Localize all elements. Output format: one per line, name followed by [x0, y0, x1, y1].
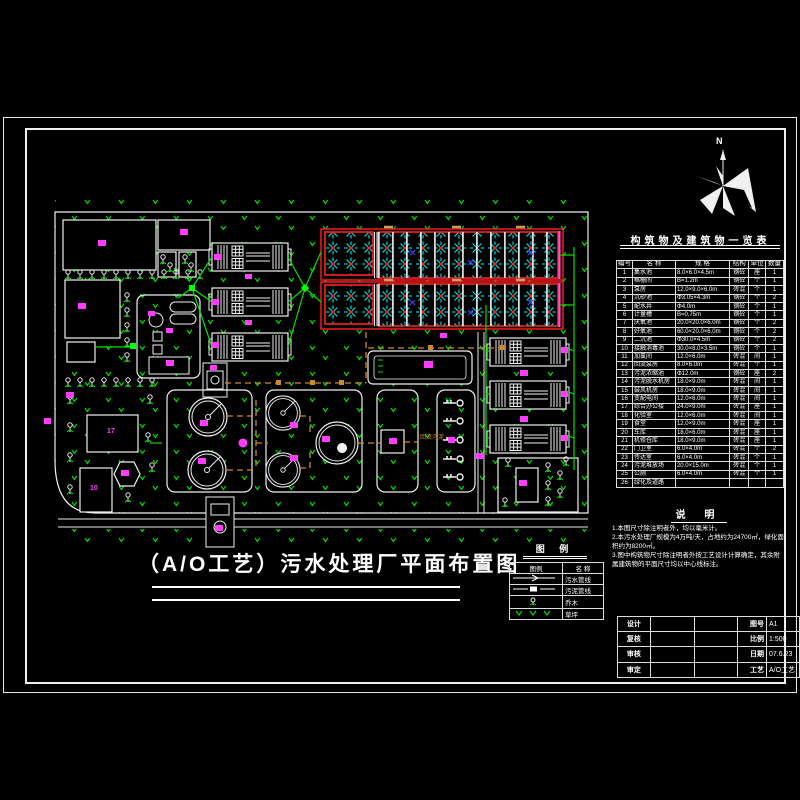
cell-name: 二沉池 — [633, 336, 676, 344]
cell-name: 泵房 — [633, 286, 676, 294]
cell-unit: 个 — [749, 361, 766, 369]
cell-qty: 1 — [766, 395, 784, 403]
table-row: 4沉砂池Φ3.05×4.3m钢砼个2 — [617, 294, 784, 302]
cell-qty: 1 — [766, 403, 784, 411]
legend-name-sewer: 污水管线 — [563, 574, 604, 585]
legend: 图 例 图例 名 称 污水管线 污泥管线 — [509, 542, 604, 620]
legend-name-tree: 乔木 — [563, 596, 604, 609]
cell-no: 6 — [617, 311, 633, 319]
cell-unit: 个 — [749, 470, 766, 478]
cell-no: 11 — [617, 353, 633, 361]
cell-spec: B=1.2m — [675, 277, 729, 285]
tb-blank-3 — [695, 647, 738, 662]
cell-unit: 个 — [749, 311, 766, 319]
review-label: 审核 — [618, 647, 651, 662]
cell-spec: 12.0×6.0m — [675, 412, 729, 420]
cell-struct: 砖混 — [730, 378, 749, 386]
cell-unit: 座 — [749, 269, 766, 277]
cell-unit: 间 — [749, 395, 766, 403]
cell-qty: 2 — [766, 294, 784, 302]
cell-qty: 1 — [766, 286, 784, 294]
legend-symbol-sludge-line-icon — [510, 585, 563, 596]
table-row: 19食堂12.0×9.0m砖混座1 — [617, 420, 784, 428]
table-row: 8好氧池60.0×20.0×6.0m钢砼个2 — [617, 328, 784, 336]
cell-name: 加氯间 — [633, 353, 676, 361]
table-row: 3泵房12.0×9.0×6.0m砖混个1 — [617, 286, 784, 294]
cell-no: 10 — [617, 344, 633, 352]
cell-struct: 钢砼 — [730, 311, 749, 319]
table-row: 25公厕6.0×4.0m砖混个1 — [617, 470, 784, 478]
cell-name: 集水池 — [633, 269, 676, 277]
cell-unit: 座 — [749, 370, 766, 378]
cell-struct: 砖混 — [730, 445, 749, 453]
date-label: 日期 — [738, 647, 767, 662]
table-row: 15鼓风机房18.0×9.0m砖混间1 — [617, 386, 784, 394]
table-row: 21机修仓库18.0×9.0m砖混座1 — [617, 437, 784, 445]
table-row: 10接触消毒池30.0×8.0×3.5m钢砼个1 — [617, 344, 784, 352]
table-row: 5配水井Φ4.0m钢砼个1 — [617, 302, 784, 310]
cell-name: 车库 — [633, 428, 676, 436]
cell-struct: 砖混 — [730, 361, 749, 369]
cell-no: 16 — [617, 395, 633, 403]
cell-qty: 1 — [766, 302, 784, 310]
cell-qty: 1 — [766, 353, 784, 361]
cell-unit: 座 — [749, 420, 766, 428]
cell-qty — [766, 479, 784, 487]
legend-title: 图 例 — [509, 542, 601, 555]
table-row: 7厌氧池20.0×20.0×6.0m钢砼个2 — [617, 319, 784, 327]
cell-spec: 20.0×15.0m — [675, 462, 729, 470]
check-label: 复核 — [618, 632, 651, 647]
cell-struct: 砖混 — [730, 286, 749, 294]
cell-spec: Φ30.0×4.5m — [675, 336, 729, 344]
cell-name: 配水井 — [633, 302, 676, 310]
col-header-struct: 结构 — [730, 261, 749, 269]
cell-spec — [675, 479, 729, 487]
table-row: 2格栅间B=1.2m钢砼个1 — [617, 277, 784, 285]
table-row: 14污泥脱水机房18.0×9.0m砖混间1 — [617, 378, 784, 386]
cell-name: 鼓风机房 — [633, 386, 676, 394]
cell-struct: 砖混 — [730, 420, 749, 428]
col-header-qty: 数量 — [766, 261, 784, 269]
cell-struct: 钢砼 — [730, 328, 749, 336]
cell-qty: 1 — [766, 269, 784, 277]
cell-name: 绿化及道路 — [633, 479, 676, 487]
cell-qty: 2 — [766, 336, 784, 344]
aeration-basin-row2 — [321, 282, 563, 329]
cell-struct: 砖混 — [730, 403, 749, 411]
approve-value — [650, 662, 695, 677]
cell-unit: 个 — [749, 462, 766, 470]
legend-underline-2 — [523, 558, 587, 559]
sludge-pipe-label: 回流污泥 — [420, 432, 444, 441]
cell-spec: 18.0×9.0m — [675, 386, 729, 394]
cell-qty: 1 — [766, 344, 784, 352]
cell-no: 3 — [617, 286, 633, 294]
cell-no: 4 — [617, 294, 633, 302]
notes-items: 1.本图尺寸除注明者外，均以毫米计。2.本污水处理厂规模为4万吨/天，占地约为2… — [612, 525, 786, 570]
cell-struct — [730, 479, 749, 487]
note-item: 1.本图尺寸除注明者外，均以毫米计。 — [612, 525, 786, 534]
legend-header-name: 名 称 — [563, 563, 604, 574]
cell-struct: 砖混 — [730, 412, 749, 420]
cell-name: 好氧池 — [633, 328, 676, 336]
col-header-name: 名 称 — [633, 261, 676, 269]
cell-name: 格栅间 — [633, 277, 676, 285]
review-value — [650, 647, 695, 662]
cell-unit: 座 — [749, 403, 766, 411]
legend-symbol-lawn-icon — [510, 609, 563, 620]
cell-qty: 1 — [766, 470, 784, 478]
table-row: 1集水池8.0×6.0×4.5m钢砼座1 — [617, 269, 784, 277]
cell-unit: 间 — [749, 386, 766, 394]
cell-struct: 钢砼 — [730, 302, 749, 310]
cell-struct: 砖混 — [730, 386, 749, 394]
cell-struct: 砖混 — [730, 453, 749, 461]
cell-qty: 2 — [766, 445, 784, 453]
cell-struct: 砖混 — [730, 395, 749, 403]
cell-unit: 间 — [749, 353, 766, 361]
cell-name: 沉砂池 — [633, 294, 676, 302]
table-row: 22门卫室6.0×4.0m砖混个2 — [617, 445, 784, 453]
cell-no: 1 — [617, 269, 633, 277]
cell-unit: 座 — [749, 428, 766, 436]
scale-value: 1:500 — [766, 632, 799, 647]
cell-qty: 1 — [766, 462, 784, 470]
cell-qty: 1 — [766, 437, 784, 445]
cell-name: 污泥堆放场 — [633, 462, 676, 470]
contact-tank — [368, 351, 472, 384]
cell-unit: 个 — [749, 286, 766, 294]
cell-spec: Φ12.0m — [675, 370, 729, 378]
cell-unit: 间 — [749, 412, 766, 420]
cell-name: 计量槽 — [633, 311, 676, 319]
cell-no: 23 — [617, 453, 633, 461]
cell-no: 12 — [617, 361, 633, 369]
cell-name: 变配电间 — [633, 395, 676, 403]
cell-qty: 1 — [766, 361, 784, 369]
cell-name: 公厕 — [633, 470, 676, 478]
title-block: 设计 图号 A1 复核 比例 1:500 审核 日期 07.6.23 审定 工艺… — [617, 616, 800, 678]
col-header-spec: 规 格 — [675, 261, 729, 269]
legend-name-sludge: 污泥管线 — [563, 585, 604, 596]
cell-struct: 砖混 — [730, 428, 749, 436]
building-label-17: 17 — [107, 428, 115, 435]
cell-qty: 2 — [766, 328, 784, 336]
cell-spec: 20.0×20.0×6.0m — [675, 319, 729, 327]
table-row: 20车库18.0×6.0m砖混座1 — [617, 428, 784, 436]
cell-struct: 砖混 — [730, 437, 749, 445]
cell-no: 13 — [617, 370, 633, 378]
cell-struct: 砖混 — [730, 353, 749, 361]
cell-struct: 钢砼 — [730, 344, 749, 352]
drawing-title: （A/O工艺）污水处理厂平面布置图 — [138, 548, 478, 578]
cell-struct: 钢砼 — [730, 370, 749, 378]
title-underline-1 — [152, 586, 460, 588]
cell-spec: 8.0×6.0m — [675, 361, 729, 369]
cell-name: 污泥浓缩池 — [633, 370, 676, 378]
approve-label: 审定 — [618, 662, 651, 677]
cell-spec: 12.0×6.0m — [675, 395, 729, 403]
cell-no: 20 — [617, 428, 633, 436]
cell-unit: 个 — [749, 277, 766, 285]
cell-spec: Φ3.05×4.3m — [675, 294, 729, 302]
cell-struct: 砖混 — [730, 470, 749, 478]
cell-spec: 12.0×9.0×6.0m — [675, 286, 729, 294]
legend-table: 图例 名 称 污水管线 污泥管线 乔木 — [509, 562, 604, 620]
note-item: 2.本污水处理厂规模为4万吨/天，占地约为24700㎡，绿化面积约为8200㎡。 — [612, 534, 786, 551]
tb-blank-1 — [695, 617, 738, 632]
table-row: 17综合办公楼24.0×9.0m砖混座1 — [617, 403, 784, 411]
cell-no: 8 — [617, 328, 633, 336]
note-item: 3.图中构筑物尺寸除注明者外按工艺设计计算确定，其余附属建筑物的平面尺寸均以中心… — [612, 552, 786, 569]
cell-no: 14 — [617, 378, 633, 386]
sheet-number: A1 — [766, 617, 799, 632]
outfall-structure — [206, 497, 234, 547]
scale-label: 比例 — [738, 632, 767, 647]
cell-struct: 钢砼 — [730, 277, 749, 285]
cell-struct: 钢砼 — [730, 319, 749, 327]
sheet-label: 图号 — [738, 617, 767, 632]
cell-no: 22 — [617, 445, 633, 453]
cell-spec: 12.0×6.0m — [675, 353, 729, 361]
legend-symbol-sewer-line-icon — [510, 574, 563, 585]
cell-no: 24 — [617, 462, 633, 470]
col-header-unit: 单位 — [749, 261, 766, 269]
notes-title: 说 明 — [612, 512, 786, 521]
cell-qty: 1 — [766, 420, 784, 428]
cell-struct: 钢砼 — [730, 294, 749, 302]
table-row: 18化验室12.0×6.0m砖混间1 — [617, 412, 784, 420]
aeration-basin-row1 — [321, 229, 563, 280]
notes-block: 说 明 1.本图尺寸除注明者外，均以毫米计。2.本污水处理厂规模为4万吨/天，占… — [612, 512, 786, 569]
cell-name: 食堂 — [633, 420, 676, 428]
legend-header-symbol: 图例 — [510, 563, 563, 574]
check-value — [650, 632, 695, 647]
cell-struct: 钢砼 — [730, 336, 749, 344]
table-row: 23传达室6.0×4.0m砖混个1 — [617, 453, 784, 461]
screen-units — [209, 243, 291, 361]
cell-no: 17 — [617, 403, 633, 411]
cell-no: 25 — [617, 470, 633, 478]
cell-name: 传达室 — [633, 453, 676, 461]
tb-blank-4 — [695, 662, 738, 677]
cell-qty: 1 — [766, 412, 784, 420]
filter-units — [487, 338, 569, 453]
table-row: 11加氯间12.0×6.0m砖混间1 — [617, 353, 784, 361]
cell-unit: 个 — [749, 336, 766, 344]
cell-unit: 个 — [749, 302, 766, 310]
cell-no: 19 — [617, 420, 633, 428]
table-row: 24污泥堆放场20.0×15.0m砖混个1 — [617, 462, 784, 470]
notes-underline — [671, 522, 727, 523]
cell-spec: 18.0×9.0m — [675, 378, 729, 386]
cell-unit: 个 — [749, 344, 766, 352]
building-label-10: 10 — [90, 485, 98, 492]
process-value: A/O工艺 — [766, 662, 799, 677]
cell-qty: 1 — [766, 428, 784, 436]
cell-unit: 座 — [749, 437, 766, 445]
north-arrow-icon — [696, 150, 756, 216]
structures-title-underline-1 — [620, 245, 780, 246]
cell-qty: 1 — [766, 386, 784, 394]
cell-struct: 砖混 — [730, 462, 749, 470]
date-value: 07.6.23 — [766, 647, 799, 662]
cell-spec: 24.0×9.0m — [675, 403, 729, 411]
cell-no: 18 — [617, 412, 633, 420]
cell-unit: 个 — [749, 294, 766, 302]
table-row: 6计量槽B=0.75m钢砼个1 — [617, 311, 784, 319]
tb-blank-2 — [695, 632, 738, 647]
table-row: 9二沉池Φ30.0×4.5m钢砼个2 — [617, 336, 784, 344]
cell-spec: 60.0×20.0×6.0m — [675, 328, 729, 336]
cell-spec: Φ4.0m — [675, 302, 729, 310]
table-row: 12回流泵房8.0×6.0m砖混个1 — [617, 361, 784, 369]
legend-name-lawn: 草坪 — [563, 609, 604, 620]
cell-qty: 1 — [766, 311, 784, 319]
table-row: 13污泥浓缩池Φ12.0m钢砼座2 — [617, 370, 784, 378]
cell-no: 5 — [617, 302, 633, 310]
design-value — [650, 617, 695, 632]
cell-struct: 钢砼 — [730, 269, 749, 277]
drawing-canvas: 17 10 回流污泥 N （A/O工艺）污水处理厂平面布置图 图 例 图例 名 … — [0, 0, 800, 800]
cell-no: 9 — [617, 336, 633, 344]
table-row: 26绿化及道路 — [617, 479, 784, 487]
cell-unit: 间 — [749, 378, 766, 386]
title-underline-2 — [152, 599, 460, 601]
cell-no: 7 — [617, 319, 633, 327]
cell-no: 2 — [617, 277, 633, 285]
cell-unit: 个 — [749, 328, 766, 336]
cell-spec: 18.0×6.0m — [675, 428, 729, 436]
cell-unit: 个 — [749, 445, 766, 453]
cell-spec: 18.0×9.0m — [675, 437, 729, 445]
cell-name: 厌氧池 — [633, 319, 676, 327]
cell-name: 门卫室 — [633, 445, 676, 453]
design-label: 设计 — [618, 617, 651, 632]
legend-underline-1 — [523, 556, 587, 557]
cell-spec: 6.0×4.0m — [675, 445, 729, 453]
cell-spec: 12.0×9.0m — [675, 420, 729, 428]
cell-unit — [749, 479, 766, 487]
cell-qty: 1 — [766, 453, 784, 461]
cell-spec: 6.0×4.0m — [675, 453, 729, 461]
cell-spec: 8.0×6.0×4.5m — [675, 269, 729, 277]
cell-spec: 30.0×8.0×3.5m — [675, 344, 729, 352]
col-header-no: 编号 — [617, 261, 633, 269]
cell-qty: 1 — [766, 378, 784, 386]
structures-table: 编号 名 称 规 格 结构 单位 数量 1集水池8.0×6.0×4.5m钢砼座1… — [616, 260, 784, 488]
legend-symbol-tree-icon — [510, 596, 563, 609]
cell-name: 综合办公楼 — [633, 403, 676, 411]
cell-qty: 1 — [766, 277, 784, 285]
cell-name: 机修仓库 — [633, 437, 676, 445]
process-label: 工艺 — [738, 662, 767, 677]
north-label: N — [716, 136, 723, 146]
cell-unit: 个 — [749, 453, 766, 461]
cell-no: 21 — [617, 437, 633, 445]
table-row: 16变配电间12.0×6.0m砖混间1 — [617, 395, 784, 403]
cell-name: 化验室 — [633, 412, 676, 420]
cell-name: 接触消毒池 — [633, 344, 676, 352]
cell-qty: 2 — [766, 319, 784, 327]
cell-no: 26 — [617, 479, 633, 487]
cell-name: 回流泵房 — [633, 361, 676, 369]
cell-spec: B=0.75m — [675, 311, 729, 319]
cell-spec: 6.0×4.0m — [675, 470, 729, 478]
cell-name: 污泥脱水机房 — [633, 378, 676, 386]
sludge-well — [239, 439, 248, 448]
cell-qty: 2 — [766, 370, 784, 378]
structures-title-underline-2 — [620, 248, 780, 249]
cell-unit: 个 — [749, 319, 766, 327]
cell-no: 15 — [617, 386, 633, 394]
